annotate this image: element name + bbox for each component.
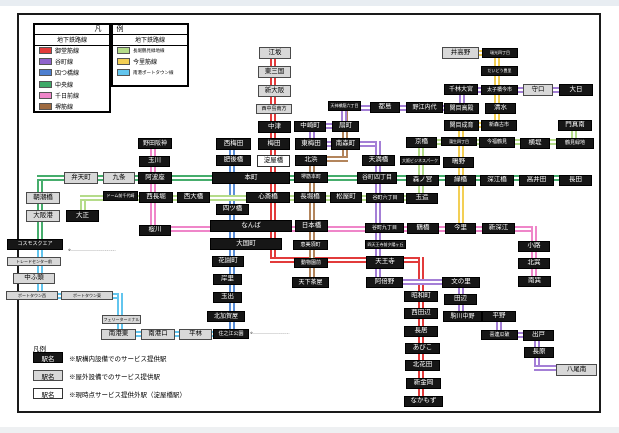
station-style-description: ※現時点サービス提供外駅（淀屋橋駅） [69,389,186,399]
station-box: 四ツ橋 [216,204,249,215]
line-color-swatch [39,69,52,76]
station-box: 新大阪 [258,85,291,97]
station-box: 緑橋 [445,175,476,186]
station-box: 中津 [258,121,291,133]
line-legend-item: 四つ橋線 [35,67,111,78]
station-box: だいどう豊里 [481,66,518,76]
station-box: トレードセンター前 [7,257,61,266]
station-box: 平野 [482,311,516,322]
station-box: 野田阪神 [138,138,172,149]
station-box: 南港東 [101,329,136,340]
station-box: 八尾南 [556,364,597,376]
station-box: 朝潮橋 [26,192,60,204]
line-segment-南港ポートタウン線 [37,245,43,297]
station-box: 日本橋 [295,220,328,232]
station-box: 北加賀屋 [207,311,245,322]
station-style-legend-row: 駅名※屋外設備でのサービス提供駅 [33,370,160,381]
line-legend-item: 中央線 [35,79,111,90]
station-box: 玉造 [406,193,438,204]
station-box: 天神橋筋六丁目 [328,101,361,111]
station-box: 西長堀 [139,192,173,203]
line-legend-item: 御堂筋線 [35,45,111,56]
station-box: 森ノ宮 [406,175,439,186]
station-box: 長原 [524,347,554,358]
station-box: 蒲生四丁目 [441,137,477,146]
station-box: 今里 [445,223,476,234]
line-legend-item: 谷町線 [35,56,111,67]
line-legend-item: 長堀鶴見緑地線 [113,45,189,56]
station-box: 都島 [370,102,400,113]
station-box: 北花田 [405,360,440,371]
line-legend-label: 中央線 [55,80,73,89]
station-box: 江坂 [259,47,291,59]
station-box: ポートタウン西 [6,291,58,300]
station-box: 四天王寺前夕陽ヶ丘 [365,240,406,249]
line-legend-label: 長堀鶴見緑地線 [133,48,165,54]
station-box: 谷町九丁目 [365,223,404,233]
station-box: ドーム前千代崎 [103,191,138,201]
line-legend-label: 四つ橋線 [55,68,79,77]
station-box: 関目成育 [444,120,479,131]
station-style-description: ※駅構内設備でのサービス提供駅 [69,353,167,363]
station-box: 長田 [559,175,592,186]
line-segment-千日前線 [150,226,535,232]
station-box: 京橋 [406,137,437,148]
station-box: 西大橋 [177,192,210,203]
station-box: 平林 [179,329,212,340]
page-top-strip [0,0,619,6]
station-box: なんば [210,220,292,232]
station-box: 西梅田 [216,138,251,150]
station-style-legend-row: 駅名※現時点サービス提供外駅（淀屋橋駅） [33,388,186,399]
line-segment-長堀鶴見緑地線 [418,141,424,199]
station-style-legend: 凡例 駅名※駅構内設備でのサービス提供駅駅名※屋外設備でのサービス提供駅駅名※現… [33,343,46,353]
station-box: 谷町六丁目 [366,193,404,203]
line-legend-label: 千日前線 [55,91,79,100]
line-color-swatch [117,69,130,76]
station-box: 九条 [103,172,135,184]
station-box: 鶴見緑地 [556,138,594,149]
station-box: 大日 [559,84,593,96]
station-box: フェリーターミナル [102,315,141,324]
station-box: 阿倍野 [366,277,403,288]
station-box: 大国町 [210,238,282,250]
station-box: 太子橋今市 [481,85,518,95]
line-color-swatch [39,92,52,99]
line-legend-label: 谷町線 [55,57,73,66]
station-box: 出戸 [523,330,554,341]
station-box: 玉出 [213,292,242,303]
station-box: 北浜 [295,155,327,166]
station-box: 桜川 [139,225,171,236]
station-box: 北巽 [518,258,550,269]
station-box: 野江内代 [406,102,443,113]
station-box: 深江橋 [480,175,514,186]
station-box: 南森町 [331,138,360,150]
page-bottom-strip [0,427,619,433]
station-box: 中ふ頭 [13,273,55,284]
station-style-sample-box: 駅名 [33,388,63,399]
station-box: 肥後橋 [216,155,251,166]
station-box: 堺筋本町 [294,172,328,183]
line-legend-label: 堺筋線 [55,102,73,111]
station-box: 西田辺 [404,308,438,319]
station-box: 大阪港 [26,210,60,222]
station-box: 守口 [523,84,553,96]
line-legend-item: 堺筋線 [35,101,111,112]
line-legend-label: 南港ポートタウン線 [133,70,174,76]
station-box: 南港口 [141,329,175,340]
station-box: 関目高殿 [444,103,479,114]
line-color-swatch [39,47,52,54]
station-box: 天王寺 [366,256,404,269]
station-box: 玉川 [139,156,170,167]
station-box: 長堀橋 [294,192,326,203]
station-box: 新金岡 [406,378,441,389]
line-color-swatch [39,81,52,88]
line-color-swatch [39,103,52,110]
station-box: 弁天町 [64,172,98,184]
station-box: 阿波座 [138,172,172,184]
station-box: 門真南 [558,120,592,131]
line-legend-item: 今里筋線 [113,56,189,67]
station-box: 喜連瓜破 [481,330,518,340]
station-box: 梅田 [258,138,290,150]
station-style-sample-box: 駅名 [33,352,63,363]
station-style-sample-box: 駅名 [33,370,63,381]
station-box: 東三国 [258,66,291,78]
station-box: 花園町 [212,256,244,267]
station-box: 天満橋 [362,155,395,166]
station-box: 横堤 [520,138,550,149]
station-box: 淀屋橋 [257,155,290,167]
line-legend-item: 南港ポートタウン線 [113,67,189,78]
station-box: 鴫野 [443,157,474,168]
station-box: 恵美須町 [293,240,328,250]
station-box: 岸里 [213,274,242,285]
station-box: 小路 [518,241,550,252]
station-box: 新深江 [482,223,515,234]
station-box: 東梅田 [295,138,327,150]
station-box: 新森古市 [481,120,517,131]
station-box: 田辺 [444,294,477,305]
station-box: 中崎町 [294,121,326,132]
station-box: 本町 [212,172,290,184]
map-annotation: ※‥‥‥‥‥‥‥‥‥‥‥‥‥‥‥‥‥‥‥‥‥‥ [68,248,142,252]
line-legend-item: 千日前線 [35,90,111,101]
station-box: 千林大宮 [444,84,478,95]
station-box: あびこ [405,343,440,354]
station-box: 文の里 [442,277,480,288]
station-box: 井高野 [442,47,479,59]
station-box: 心斎橋 [246,192,290,203]
subway-service-map-page: 江坂東三国新大阪西中島南方中津梅田淀屋橋本町心斎橋なんば大国町動物園前天王寺昭和… [0,0,619,433]
station-box: 駒川中野 [443,311,482,322]
station-box: 住之江公園 [213,329,249,339]
line-color-swatch [117,47,130,54]
station-box: 谷町四丁目 [357,172,397,184]
station-box: 扇町 [332,121,359,132]
station-style-legend-row: 駅名※駅構内設備でのサービス提供駅 [33,352,167,363]
map-annotation: ※‥‥‥‥‥‥‥‥‥‥‥‥‥‥‥‥‥‥ [250,331,322,335]
station-style-description: ※屋外設備でのサービス提供駅 [69,371,160,381]
station-box: ポートタウン東 [61,291,113,300]
line-segment-千日前線 [531,226,537,282]
station-box: 大正 [66,210,99,222]
line-color-swatch [117,58,130,65]
station-box: 鶴橋 [407,223,439,234]
station-box: 動物園前 [294,258,328,268]
station-box: 清水 [485,103,516,114]
station-box: 高井田 [519,175,554,186]
station-box: 今福鶴見 [479,137,515,148]
station-box: 天下茶屋 [292,277,329,288]
station-box: コスモスクエア [7,239,63,250]
station-box: 西中島南方 [256,104,292,114]
station-box: なかもず [404,396,443,407]
line-color-swatch [39,58,52,65]
station-box: 松屋町 [330,192,362,203]
station-box: 瑞光四丁目 [482,48,518,58]
line-legend-label: 今里筋線 [133,57,157,66]
line-legend: 凡 例 地下鉄路線 地下鉄路線 御堂筋線谷町線四つ橋線中央線千日前線堺筋線長堀鶴… [33,23,189,113]
station-box: 昭和町 [404,291,438,302]
station-box: 長居 [404,326,438,337]
line-legend-label: 御堂筋線 [55,46,79,55]
station-box: 大阪ビジネスパーク [400,156,440,165]
station-box: 南巽 [518,276,551,287]
